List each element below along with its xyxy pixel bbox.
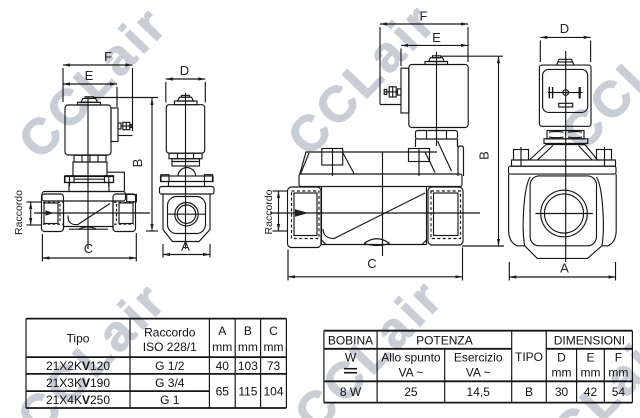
svg-text:Tipo: Tipo <box>67 332 90 346</box>
svg-text:104: 104 <box>263 385 283 399</box>
svg-text:F: F <box>420 9 428 24</box>
svg-text:E: E <box>586 351 594 365</box>
svg-text:D: D <box>560 21 569 36</box>
svg-text:mm: mm <box>212 340 232 354</box>
svg-text:G 1/2: G 1/2 <box>155 359 185 373</box>
svg-text:115: 115 <box>238 385 257 399</box>
svg-text:Raccordo: Raccordo <box>144 326 196 340</box>
svg-text:54: 54 <box>612 385 626 399</box>
svg-text:F: F <box>615 351 622 365</box>
svg-text:21X4KV250: 21X4KV250 <box>46 393 110 407</box>
svg-text:103: 103 <box>238 359 258 373</box>
svg-text:CCLair: CCLair <box>277 0 448 166</box>
svg-text:Allo spunto: Allo spunto <box>381 351 441 365</box>
svg-text:TIPO: TIPO <box>515 350 543 364</box>
svg-text:D: D <box>557 351 566 365</box>
svg-text:ISO 228/1: ISO 228/1 <box>143 340 197 354</box>
svg-text:Raccordo: Raccordo <box>263 189 275 234</box>
svg-text:DIMENSIONI: DIMENSIONI <box>554 334 625 348</box>
svg-text:mm: mm <box>608 366 628 380</box>
svg-text:A: A <box>218 324 226 338</box>
svg-text:W: W <box>345 351 357 365</box>
svg-text:D: D <box>180 63 189 78</box>
svg-text:40: 40 <box>216 359 230 373</box>
svg-text:mm: mm <box>238 340 258 354</box>
svg-text:VA ~: VA ~ <box>399 366 424 380</box>
svg-text:G 3/4: G 3/4 <box>155 376 185 390</box>
svg-text:A: A <box>181 239 190 254</box>
svg-text:42: 42 <box>584 385 598 399</box>
svg-text:mm: mm <box>264 340 284 354</box>
svg-text:21X3KV190: 21X3KV190 <box>46 376 110 390</box>
svg-text:30: 30 <box>555 385 569 399</box>
svg-text:E: E <box>432 30 441 45</box>
svg-text:B: B <box>130 159 145 168</box>
svg-text:14,5: 14,5 <box>467 385 491 399</box>
svg-text:C: C <box>269 324 278 338</box>
svg-text:73: 73 <box>267 359 281 373</box>
svg-text:VA ~: VA ~ <box>466 366 491 380</box>
svg-text:65: 65 <box>216 385 230 399</box>
svg-text:Raccordo: Raccordo <box>13 190 25 235</box>
svg-text:G 1: G 1 <box>160 393 180 407</box>
svg-text:B: B <box>244 324 252 338</box>
svg-text:8 W: 8 W <box>340 385 362 399</box>
svg-text:E: E <box>85 68 94 83</box>
svg-text:Esercizio: Esercizio <box>454 351 503 365</box>
svg-text:21X2KV120: 21X2KV120 <box>46 359 110 373</box>
svg-text:POTENZA: POTENZA <box>416 334 473 348</box>
svg-text:mm: mm <box>581 366 601 380</box>
svg-text:B: B <box>477 151 492 160</box>
svg-text:BOBINA: BOBINA <box>328 334 373 348</box>
svg-text:A: A <box>560 261 569 276</box>
svg-text:mm: mm <box>552 366 572 380</box>
svg-text:F: F <box>104 49 112 64</box>
svg-text:C: C <box>367 256 376 271</box>
svg-text:25: 25 <box>404 385 418 399</box>
svg-text:B: B <box>525 385 533 399</box>
